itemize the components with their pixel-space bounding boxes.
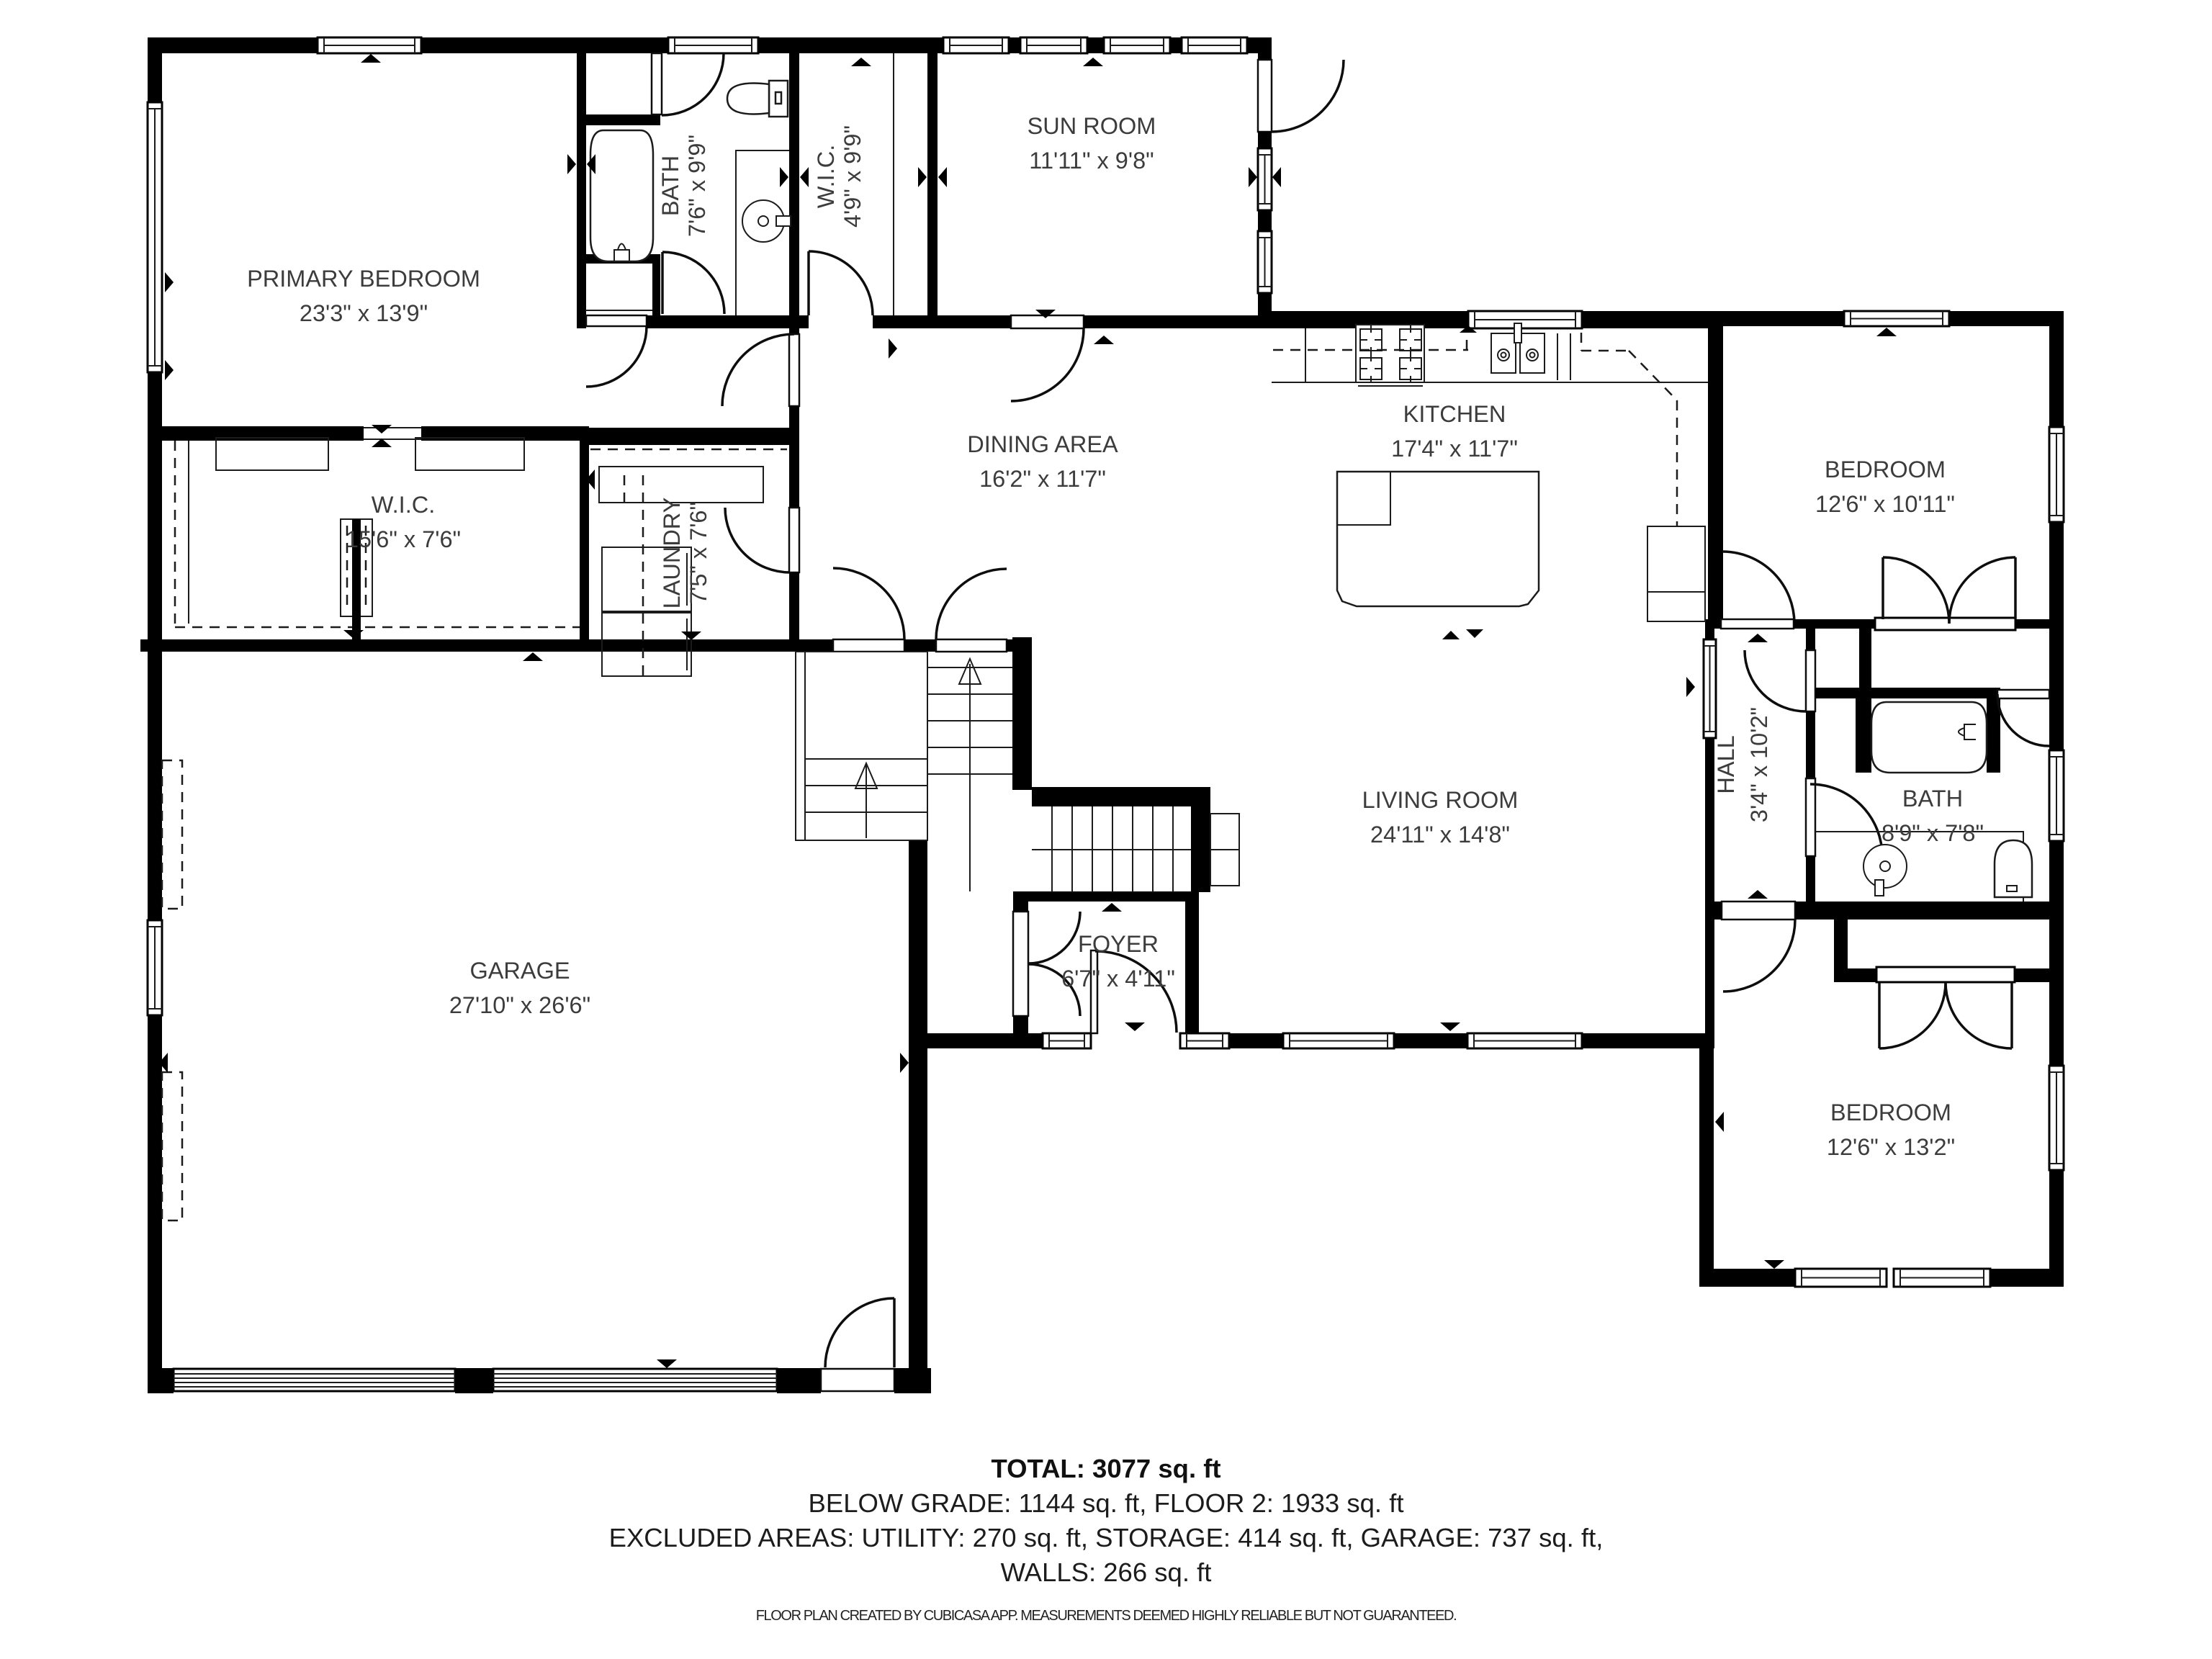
svg-text:BEDROOM: BEDROOM xyxy=(1825,457,1946,482)
svg-text:7'5" x 7'6": 7'5" x 7'6" xyxy=(685,502,711,604)
svg-text:WALLS: 266 sq. ft: WALLS: 266 sq. ft xyxy=(1001,1557,1212,1587)
svg-text:HALL: HALL xyxy=(1713,735,1739,793)
svg-text:PRIMARY BEDROOM: PRIMARY BEDROOM xyxy=(247,266,480,292)
svg-text:3'4" x 10'2": 3'4" x 10'2" xyxy=(1746,707,1772,822)
svg-text:8'9" x 7'8": 8'9" x 7'8" xyxy=(1881,820,1984,846)
svg-text:FLOOR PLAN CREATED BY CUBICASA: FLOOR PLAN CREATED BY CUBICASA APP. MEAS… xyxy=(756,1608,1457,1624)
svg-text:23'3" x 13'9": 23'3" x 13'9" xyxy=(300,300,428,326)
svg-text:7'6" x 9'9": 7'6" x 9'9" xyxy=(684,135,710,237)
svg-text:6'7" x 4'11": 6'7" x 4'11" xyxy=(1061,966,1175,992)
svg-text:16'2" x 11'7": 16'2" x 11'7" xyxy=(979,466,1106,492)
svg-text:GARAGE: GARAGE xyxy=(469,958,570,984)
svg-text:W.I.C.: W.I.C. xyxy=(372,492,435,518)
svg-text:12'6" x 13'2": 12'6" x 13'2" xyxy=(1827,1134,1955,1160)
svg-text:4'9" x 9'9": 4'9" x 9'9" xyxy=(840,125,866,228)
svg-text:11'11" x 9'8": 11'11" x 9'8" xyxy=(1029,148,1154,174)
svg-text:KITCHEN: KITCHEN xyxy=(1403,401,1506,427)
svg-text:12'6" x 10'11": 12'6" x 10'11" xyxy=(1815,491,1955,517)
svg-text:DINING AREA: DINING AREA xyxy=(967,431,1118,457)
svg-text:BATH: BATH xyxy=(657,156,683,216)
svg-text:BATH: BATH xyxy=(1902,786,1963,811)
svg-text:17'4" x 11'7": 17'4" x 11'7" xyxy=(1391,436,1518,462)
svg-text:27'10" x 26'6": 27'10" x 26'6" xyxy=(449,992,590,1018)
svg-text:24'11" x 14'8": 24'11" x 14'8" xyxy=(1370,822,1510,848)
svg-text:EXCLUDED AREAS: UTILITY: 270 s: EXCLUDED AREAS: UTILITY: 270 sq. ft, STO… xyxy=(609,1523,1604,1552)
svg-text:15'6" x 7'6": 15'6" x 7'6" xyxy=(346,526,461,552)
svg-text:LAUNDRY: LAUNDRY xyxy=(659,498,685,609)
svg-text:LIVING ROOM: LIVING ROOM xyxy=(1362,787,1519,813)
svg-text:BEDROOM: BEDROOM xyxy=(1830,1100,1951,1125)
svg-text:FOYER: FOYER xyxy=(1078,931,1159,957)
svg-text:W.I.C.: W.I.C. xyxy=(813,145,839,208)
svg-text:TOTAL: 3077 sq. ft: TOTAL: 3077 sq. ft xyxy=(991,1454,1220,1483)
svg-text:SUN ROOM: SUN ROOM xyxy=(1028,113,1156,139)
svg-text:BELOW GRADE: 1144 sq. ft, FLOO: BELOW GRADE: 1144 sq. ft, FLOOR 2: 1933 … xyxy=(809,1488,1404,1518)
